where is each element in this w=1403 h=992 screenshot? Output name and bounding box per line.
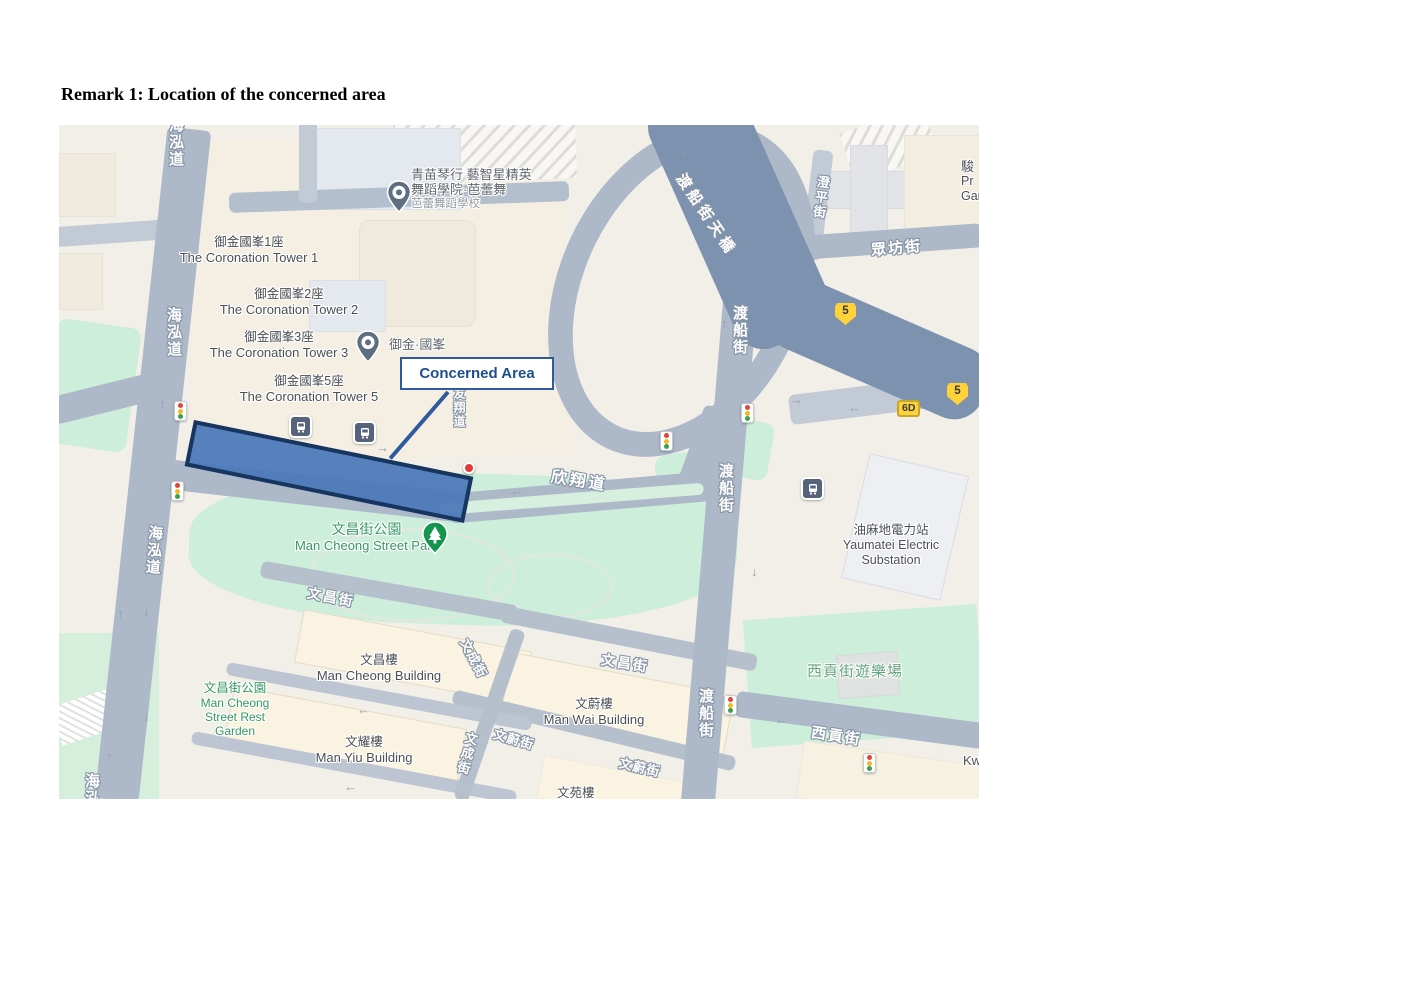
- label-en3: Garden: [185, 724, 285, 738]
- label-zh: 御金國峯1座: [134, 235, 364, 250]
- label-k-clipped: Kw: [963, 753, 979, 768]
- park-pin-icon: [421, 521, 449, 555]
- label-line1: 青苗琴行 藝智星精英: [411, 167, 601, 182]
- label-coronation-tower-5: 御金國峯5座 The Coronation Tower 5: [194, 374, 424, 404]
- label-en2: Substation: [801, 553, 979, 568]
- label-en1: Man Cheong: [185, 696, 285, 710]
- label-zh: 文蔚樓: [514, 697, 674, 712]
- coronation-pin: [355, 330, 381, 369]
- route-badge-6d: 6D: [897, 400, 920, 417]
- label-coronation-tower-2: 御金國峯2座 The Coronation Tower 2: [174, 287, 404, 317]
- street-label-public-square: 眾坊街: [870, 235, 923, 260]
- label-man-cheong-building: 文昌樓 Man Cheong Building: [299, 653, 459, 683]
- arrow-left-icon: ←: [510, 484, 523, 497]
- arrow-left-icon: ←: [775, 713, 788, 726]
- arrow-up-icon: ↑: [721, 317, 728, 330]
- traffic-light-icon: [741, 403, 754, 423]
- label-en: The Coronation Tower 5: [194, 389, 424, 404]
- label-k: Kw: [963, 753, 979, 768]
- street-label-ferry-1: 渡船街: [729, 305, 750, 356]
- music-school-pin: [386, 180, 412, 219]
- label-l3: Gar: [961, 189, 979, 204]
- arrow-up-icon: ↑: [159, 397, 166, 410]
- label-l2: Pr: [961, 174, 979, 189]
- label-l1: 駿: [961, 159, 979, 174]
- traffic-light-icon: [863, 753, 876, 773]
- traffic-light-icon: [171, 481, 184, 501]
- label-zh: 文昌樓: [299, 653, 459, 668]
- label-en: The Coronation Tower 1: [134, 250, 364, 265]
- label-zh: 油麻地電力站: [801, 523, 979, 538]
- arrow-left-icon: ←: [848, 401, 861, 414]
- label-substation: 油麻地電力站 Yaumatei Electric Substation: [801, 523, 979, 567]
- street-label-ferry-2: 渡船街: [715, 463, 736, 514]
- road-estate-internal-vertical: [299, 125, 317, 203]
- arrow-down-icon: ↓: [143, 710, 150, 723]
- street-label-hoi-wang-upper: 海泓道: [163, 307, 184, 358]
- label-zh: 御金·國峯: [389, 337, 445, 352]
- arrow-left-icon: ←: [357, 703, 370, 716]
- arrow-up-icon: ↑: [680, 147, 687, 160]
- label-coronation-tower-1: 御金國峯1座 The Coronation Tower 1: [134, 235, 364, 265]
- bus-stop-icon: [289, 415, 312, 438]
- label-en: Man Cheong Building: [299, 668, 459, 683]
- street-label-hoi-wang-top: 海泓道: [165, 125, 186, 168]
- label-zh: 文昌街公園: [185, 681, 285, 696]
- label-en1: Yaumatei Electric: [801, 538, 979, 553]
- label-line2: 舞蹈學院·芭蕾舞: [411, 182, 601, 197]
- label-line3: 芭蕾舞蹈學校: [411, 198, 601, 212]
- bus-stop-icon: [353, 421, 376, 444]
- page-title: Remark 1: Location of the concerned area: [61, 84, 386, 105]
- label-zh: 御金國峯2座: [174, 287, 404, 302]
- arrow-down-icon: ↓: [143, 605, 150, 618]
- arrow-right-icon: →: [790, 393, 803, 406]
- building-cross-shape-b: [850, 145, 888, 233]
- traffic-light-icon: [724, 695, 737, 715]
- arrow-up-icon: ↑: [117, 607, 124, 620]
- arrow-right-icon: →: [376, 441, 389, 454]
- bus-stop-icon: [801, 477, 824, 500]
- building-block: [59, 253, 103, 310]
- building-block: [59, 153, 116, 217]
- street-label-ching-ping: 澄平街: [808, 174, 832, 221]
- label-prosperous-garden-clipped: 駿 Pr Gar: [961, 159, 979, 204]
- label-en: Man Wai Building: [514, 712, 674, 727]
- arrow-up-icon: ↑: [106, 750, 113, 763]
- traffic-light-icon: [660, 431, 673, 451]
- traffic-light-icon: [174, 401, 187, 421]
- street-label-hoi-wang-mid: 海泓道: [141, 524, 166, 576]
- label-zh: 西貢街遊樂場: [807, 663, 903, 681]
- arrow-left-icon: ←: [344, 780, 357, 793]
- stop-marker-icon: [463, 462, 475, 474]
- document-page: Remark 1: Location of the concerned area: [0, 0, 1403, 992]
- arrow-down-icon: ↓: [751, 565, 758, 578]
- label-en2: Street Rest: [185, 710, 285, 724]
- label-en: Man Yiu Building: [284, 750, 444, 765]
- label-zh: 御金國峯5座: [194, 374, 424, 389]
- label-coronation-poi: 御金·國峯: [389, 337, 445, 352]
- concerned-area-callout-label: Concerned Area: [419, 365, 534, 382]
- label-playground: 西貢街遊樂場: [807, 663, 903, 681]
- label-man-yuen-building-partial: 文苑樓: [557, 786, 595, 799]
- building-block: [796, 740, 979, 799]
- street-label-yau-cheung: 友翔道: [451, 387, 468, 429]
- place-pin-icon: [355, 330, 381, 364]
- label-en: The Coronation Tower 2: [174, 302, 404, 317]
- concerned-area-callout: Concerned Area: [400, 357, 554, 390]
- street-label-ferry-3: 渡船街: [695, 688, 716, 739]
- label-zh: 文耀樓: [284, 735, 444, 750]
- street-label-hoi-wang-bottom: 海泓道: [81, 773, 102, 799]
- place-pin-icon: [386, 180, 412, 214]
- label-man-yiu-building: 文耀樓 Man Yiu Building: [284, 735, 444, 765]
- label-music-school: 青苗琴行 藝智星精英 舞蹈學院·芭蕾舞 芭蕾舞蹈學校: [411, 167, 601, 211]
- label-rest-garden: 文昌街公園 Man Cheong Street Rest Garden: [185, 681, 285, 738]
- park-tree-pin: [421, 521, 449, 560]
- label-zh: 文苑樓: [557, 786, 595, 799]
- label-man-wai-building: 文蔚樓 Man Wai Building: [514, 697, 674, 727]
- map-canvas: 海泓道 海泓道 海泓道 海泓道 欣翔道 友翔道 渡船街天橋 渡船街 渡船街 渡船…: [59, 125, 979, 799]
